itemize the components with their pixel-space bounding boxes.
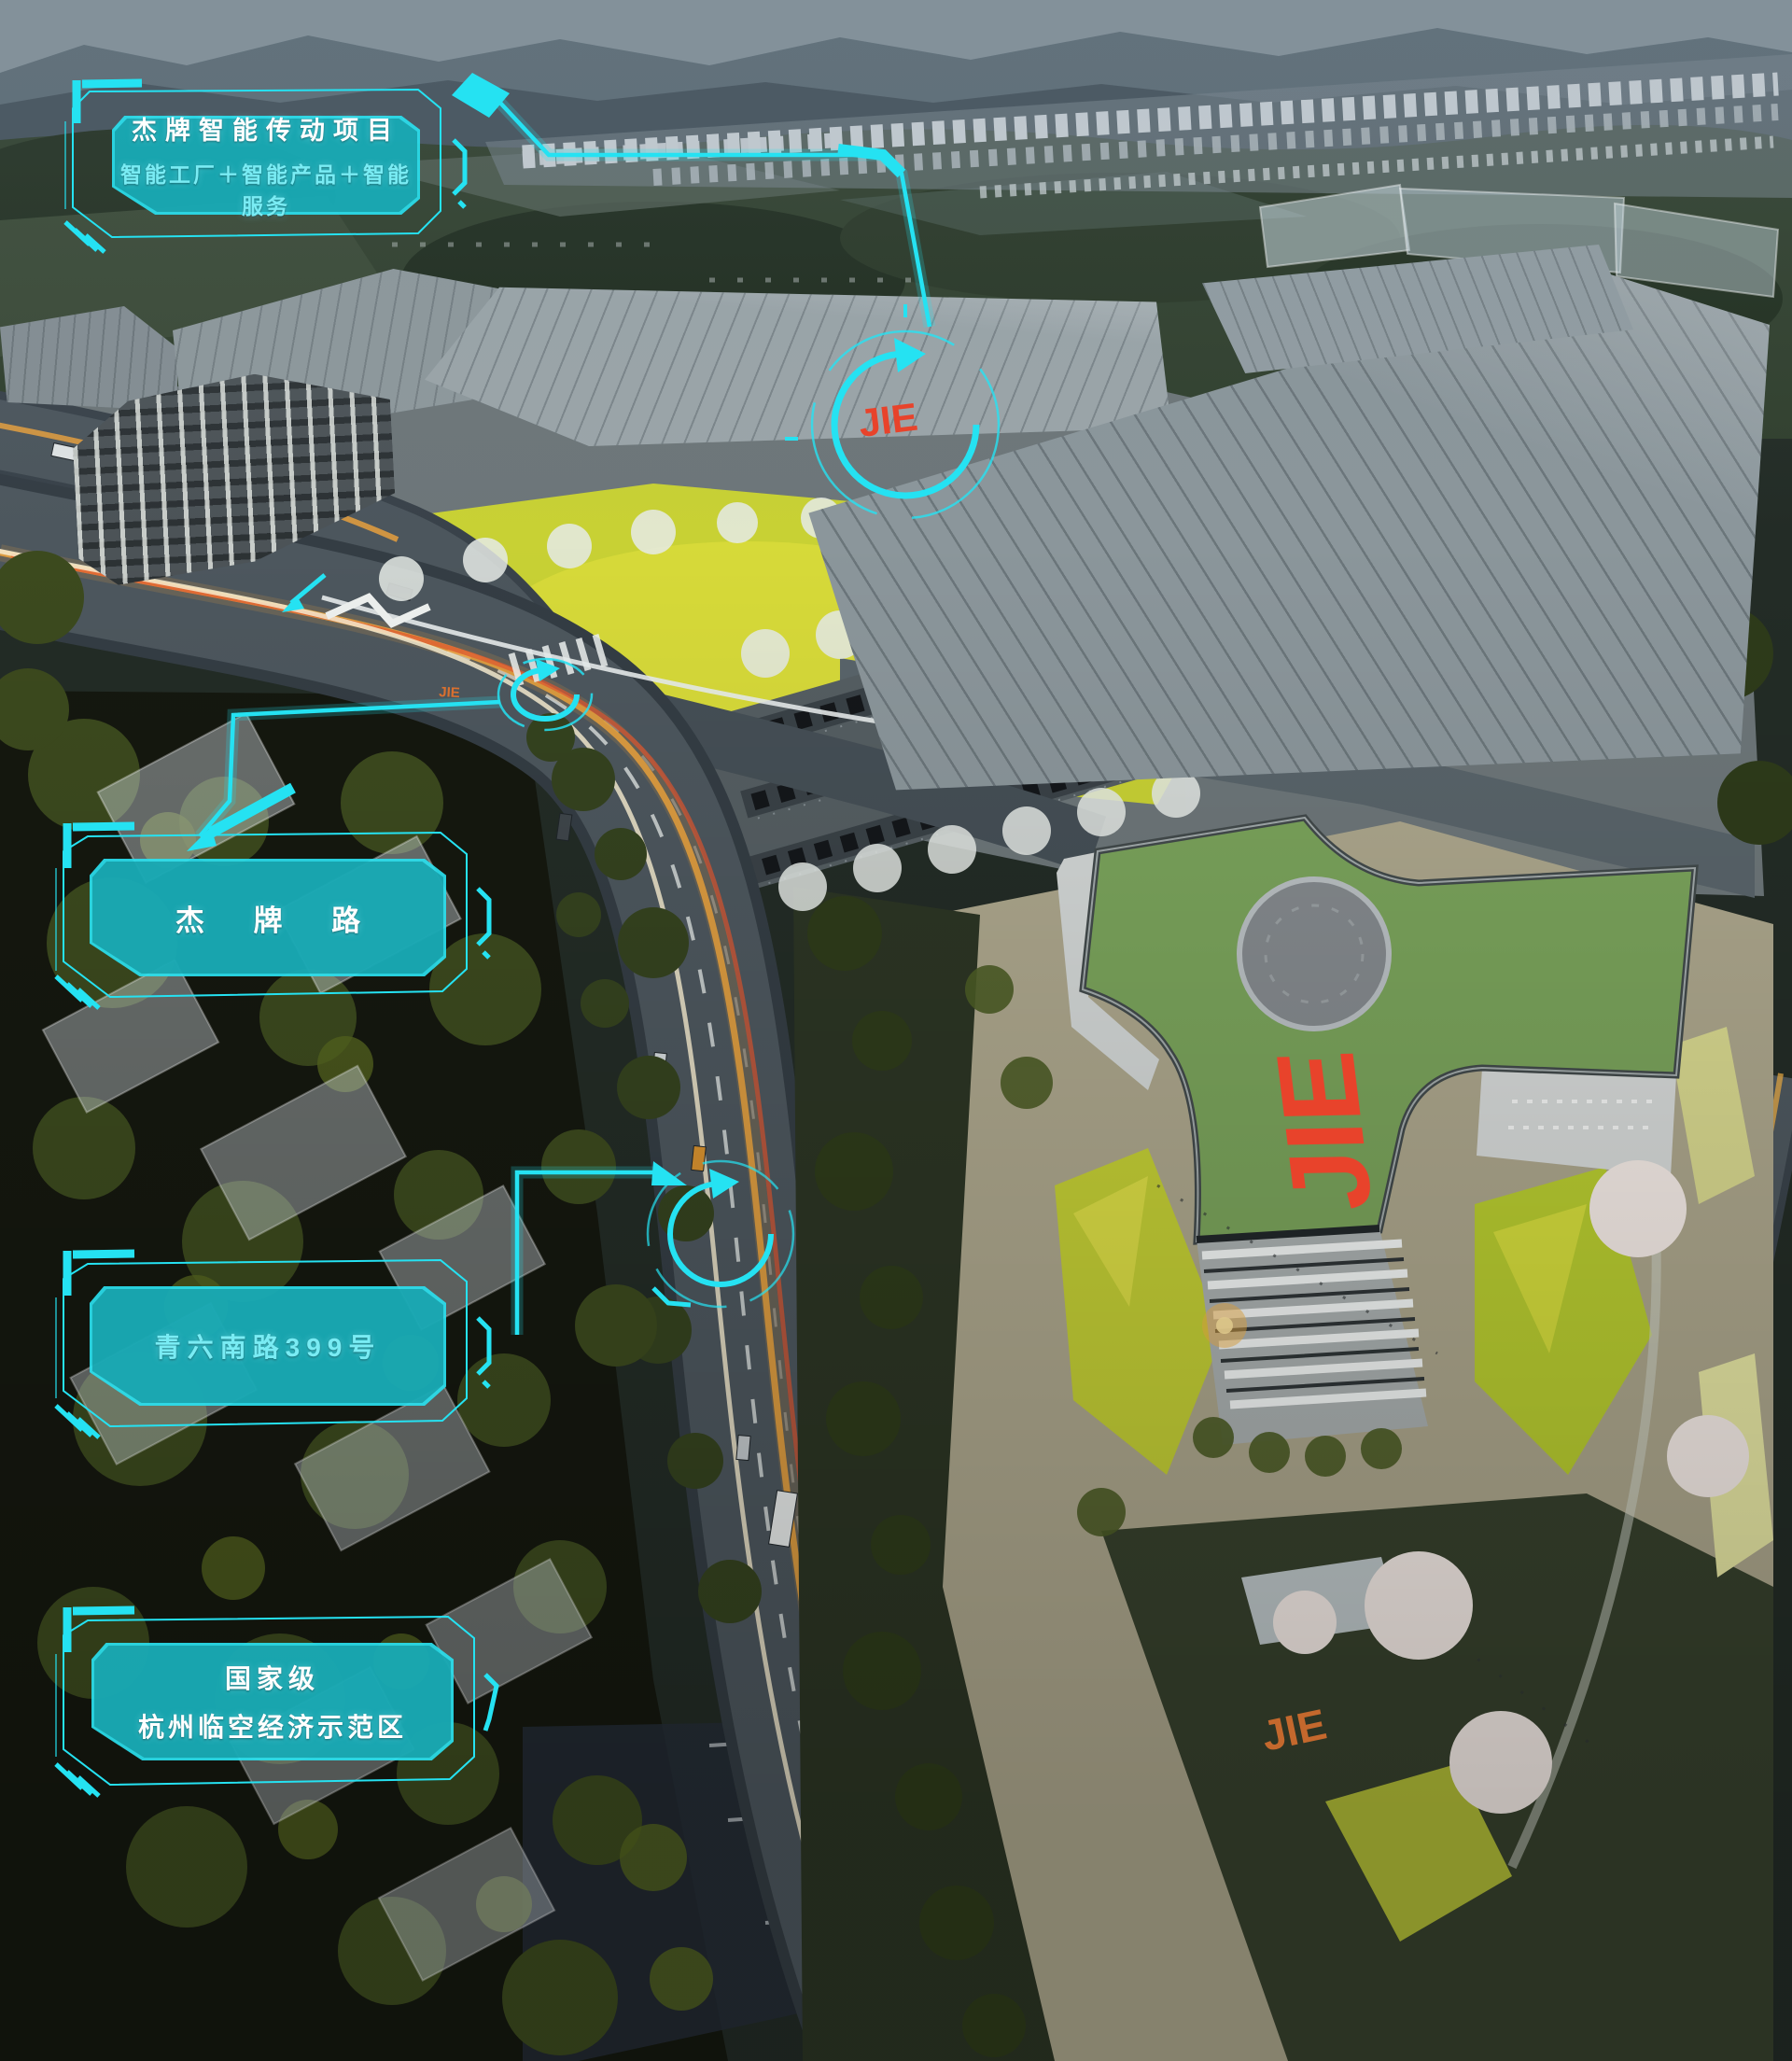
callout-address: 青六南路399号 [90, 1286, 446, 1406]
callout-project-subtitle: 智能工厂＋智能产品＋智能服务 [112, 157, 420, 220]
callout-jiepai-road-label: 杰 牌 路 [155, 897, 381, 939]
connector-glow [200, 101, 930, 1335]
connector-address [517, 1172, 653, 1335]
factory-facade-logo: JIE [856, 395, 919, 445]
callout-address-label: 青六南路399号 [155, 1327, 382, 1365]
callout-demo-zone: 国家级 杭州临空经济示范区 [91, 1643, 454, 1760]
connector-arrowheads [187, 73, 926, 1199]
ground-lawn-logo: JIE [1257, 1700, 1330, 1760]
callout-project-title: 杰牌智能传动项目 [132, 110, 400, 147]
aerial-rendering: JIE JIE JIE JIE 杰牌智能传动项目 智能工厂＋智能产品＋智能服务 … [0, 0, 1792, 2061]
callout-demo-zone-line2: 杭州临空经济示范区 [138, 1707, 407, 1745]
arrowhead-circle-address [709, 1169, 739, 1199]
arrowhead-circle-road [536, 659, 560, 681]
callout-jiepai-road: 杰 牌 路 [90, 859, 446, 976]
callout-project: 杰牌智能传动项目 智能工厂＋智能产品＋智能服务 [112, 116, 420, 215]
arrowhead-address [651, 1161, 687, 1185]
hq-roof-logo: JIE [1253, 1051, 1396, 1212]
gate-wall-logo: JIE [439, 684, 460, 701]
callout-demo-zone-line1: 国家级 [225, 1659, 320, 1696]
arrowhead-circle-factory [894, 338, 926, 372]
connector-project [498, 101, 930, 327]
arrowhead-gate [282, 596, 304, 612]
